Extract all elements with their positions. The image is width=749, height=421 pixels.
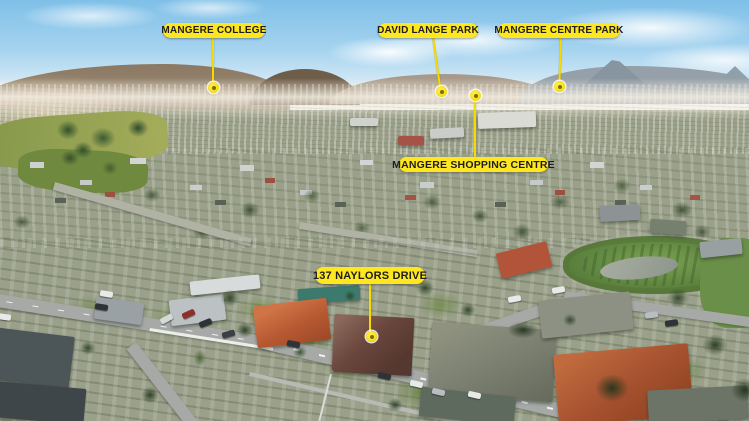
- house-roof: [600, 204, 641, 222]
- label-mangere-centre-park: MANGERE CENTRE PARK: [498, 23, 620, 38]
- leader-line-mangere-college: [212, 37, 214, 82]
- warehouse-building: [350, 118, 378, 126]
- marker-dot-mangere-centre-park: [554, 81, 565, 92]
- shopping-centre-building: [430, 127, 464, 139]
- leader-line-property: [369, 284, 371, 336]
- car: [0, 313, 11, 321]
- red-roof-building: [398, 136, 424, 145]
- house-roof: [650, 219, 687, 235]
- label-david-lange-park: DAVID LANGE PARK: [378, 23, 478, 38]
- marker-dot-mangere-college: [208, 82, 219, 93]
- shopping-centre-building: [478, 111, 537, 129]
- marker-dot-property: [366, 331, 377, 342]
- label-mangere-college: MANGERE COLLEGE: [163, 23, 265, 38]
- marker-dot-david-lange-park: [436, 86, 447, 97]
- leader-line-mangere-shopping-centre: [474, 100, 476, 157]
- label-property-137-naylors-drive: 137 NAYLORS DRIVE: [315, 267, 425, 284]
- marker-dot-mangere-shopping-centre: [470, 90, 481, 101]
- label-mangere-shopping-centre: MANGERE SHOPPING CENTRE: [399, 157, 548, 172]
- aerial-photo: MANGERE COLLEGE DAVID LANGE PARK MANGERE…: [0, 0, 749, 421]
